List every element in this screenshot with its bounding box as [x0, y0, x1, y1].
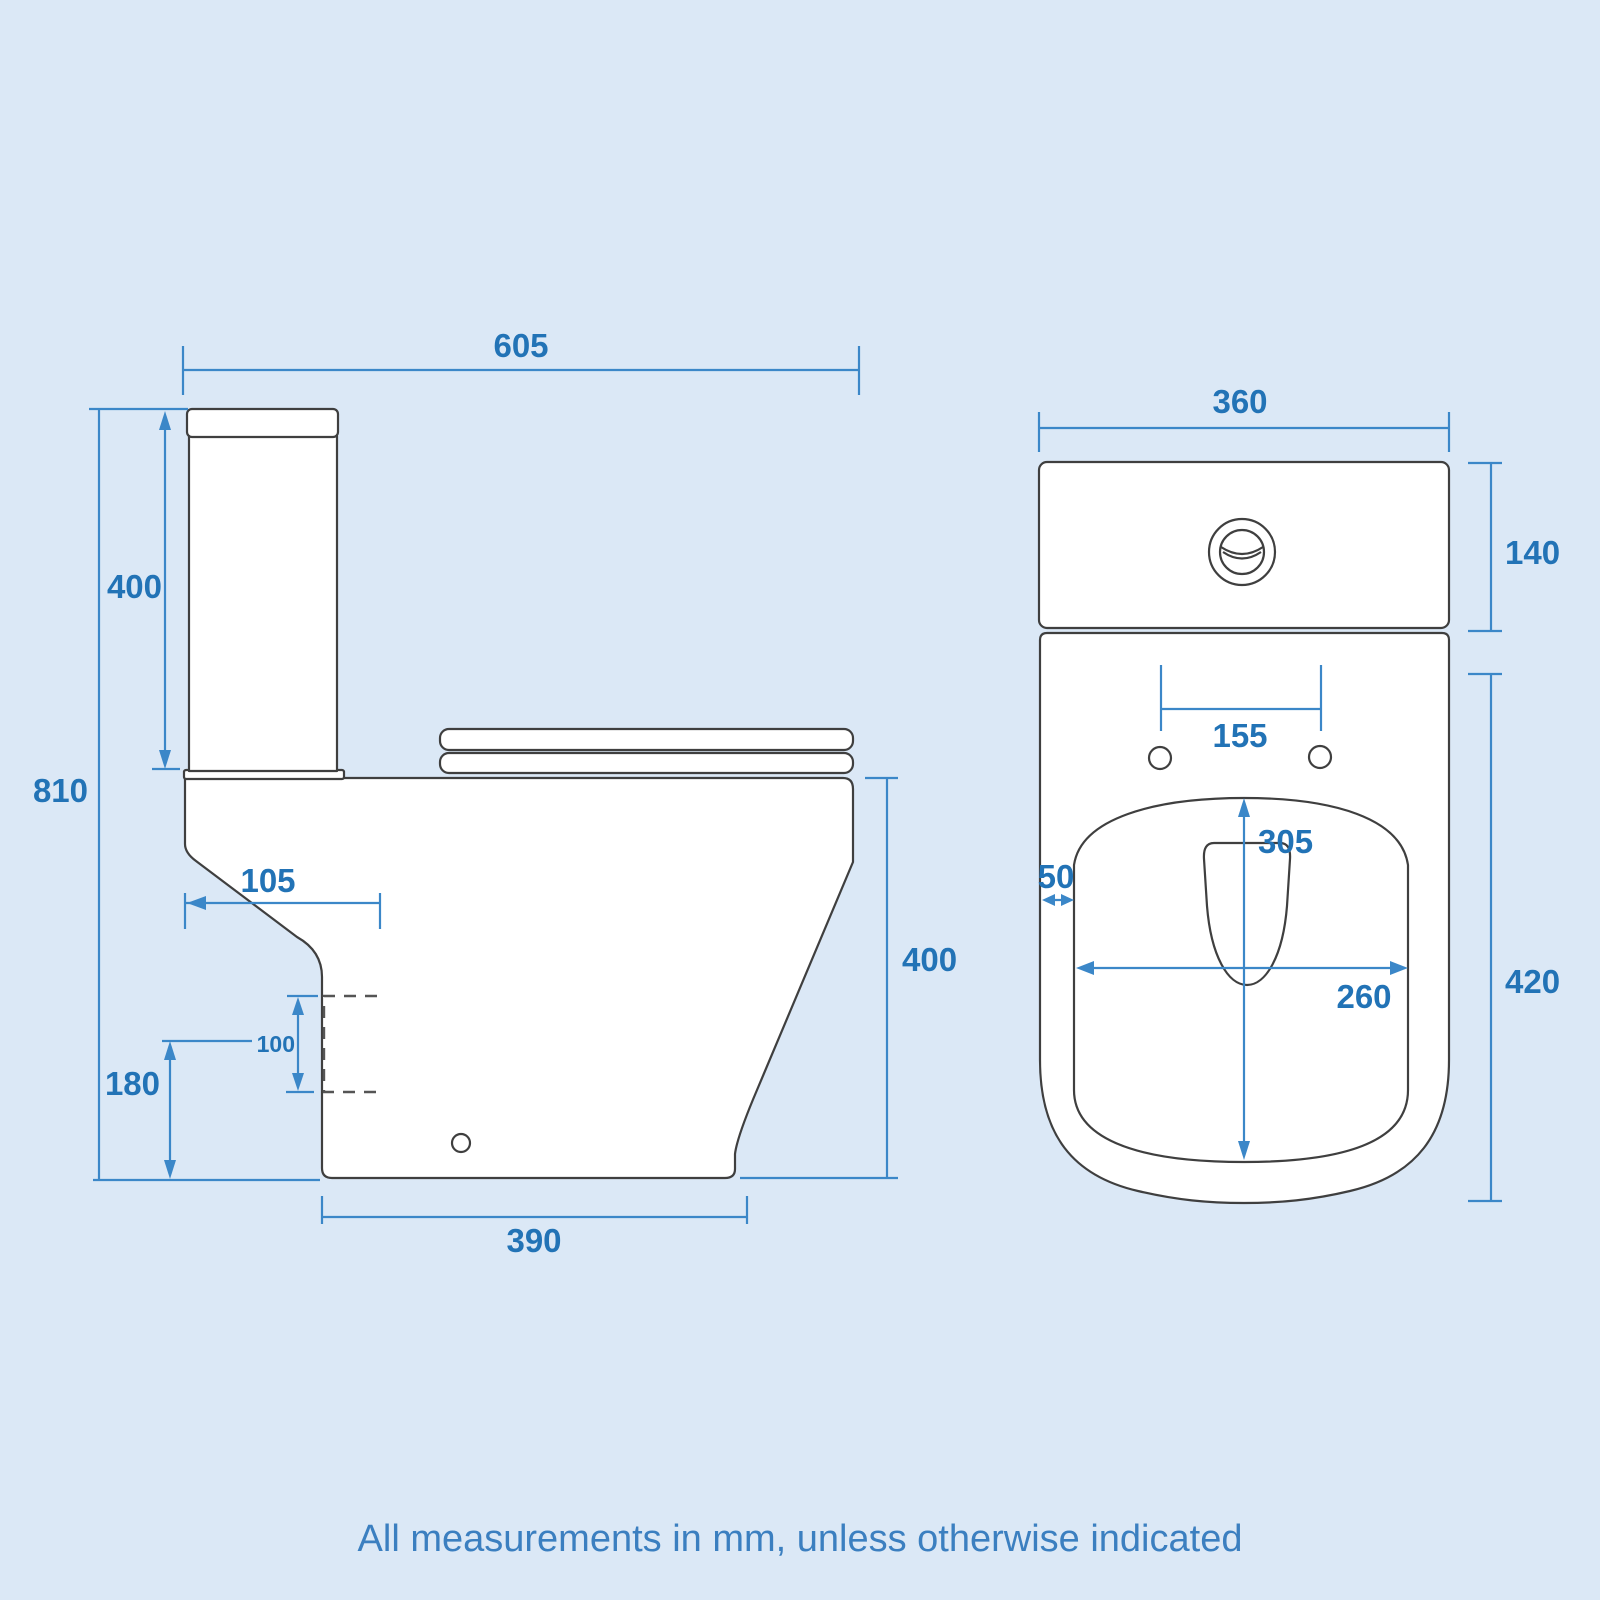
side-seat-ring	[440, 753, 853, 773]
dim-side-overall-width: 605	[183, 327, 859, 395]
front-bolt-hole-right	[1309, 746, 1331, 768]
front-bolt-hole-left	[1149, 747, 1171, 769]
dim-label-360: 360	[1212, 383, 1267, 420]
dim-label-305: 305	[1258, 823, 1313, 860]
front-view: 360 140 155 50 260	[1038, 383, 1560, 1203]
side-seat-lid	[440, 729, 853, 750]
dim-label-810: 810	[33, 772, 88, 809]
dim-label-420: 420	[1505, 963, 1560, 1000]
dim-label-50: 50	[1038, 858, 1075, 895]
dim-side-base-depth: 390	[322, 1196, 747, 1259]
dim-label-155: 155	[1212, 717, 1267, 754]
dim-label-400-pan: 400	[902, 941, 957, 978]
dim-label-605: 605	[493, 327, 548, 364]
dim-label-260: 260	[1336, 978, 1391, 1015]
dim-label-140: 140	[1505, 534, 1560, 571]
side-pan-outline	[185, 778, 853, 1178]
side-cistern-lid	[187, 409, 338, 437]
dim-label-400-cistern: 400	[107, 568, 162, 605]
side-view: 605 810 400 105 100	[33, 327, 957, 1259]
dim-label-390: 390	[506, 1222, 561, 1259]
measurements-note: All measurements in mm, unless otherwise…	[358, 1518, 1243, 1560]
dim-front-overall-width: 360	[1039, 383, 1449, 452]
front-flush-button	[1209, 519, 1275, 585]
toilet-dimension-drawing: 605 810 400 105 100	[0, 0, 1600, 1600]
dim-front-pan-height: 420	[1468, 674, 1560, 1201]
dim-side-cistern-height: 400	[107, 411, 180, 769]
dim-label-105: 105	[240, 862, 295, 899]
dim-label-180: 180	[105, 1065, 160, 1102]
dim-side-outlet-height: 180	[105, 1041, 252, 1179]
dim-side-outlet-size: 100	[257, 996, 318, 1092]
side-fixing-hole	[452, 1134, 470, 1152]
technical-drawing-page: 605 810 400 105 100	[0, 0, 1600, 1600]
dim-front-cistern-height: 140	[1468, 463, 1560, 631]
dim-label-100: 100	[257, 1031, 295, 1057]
side-cistern-body	[189, 436, 337, 771]
